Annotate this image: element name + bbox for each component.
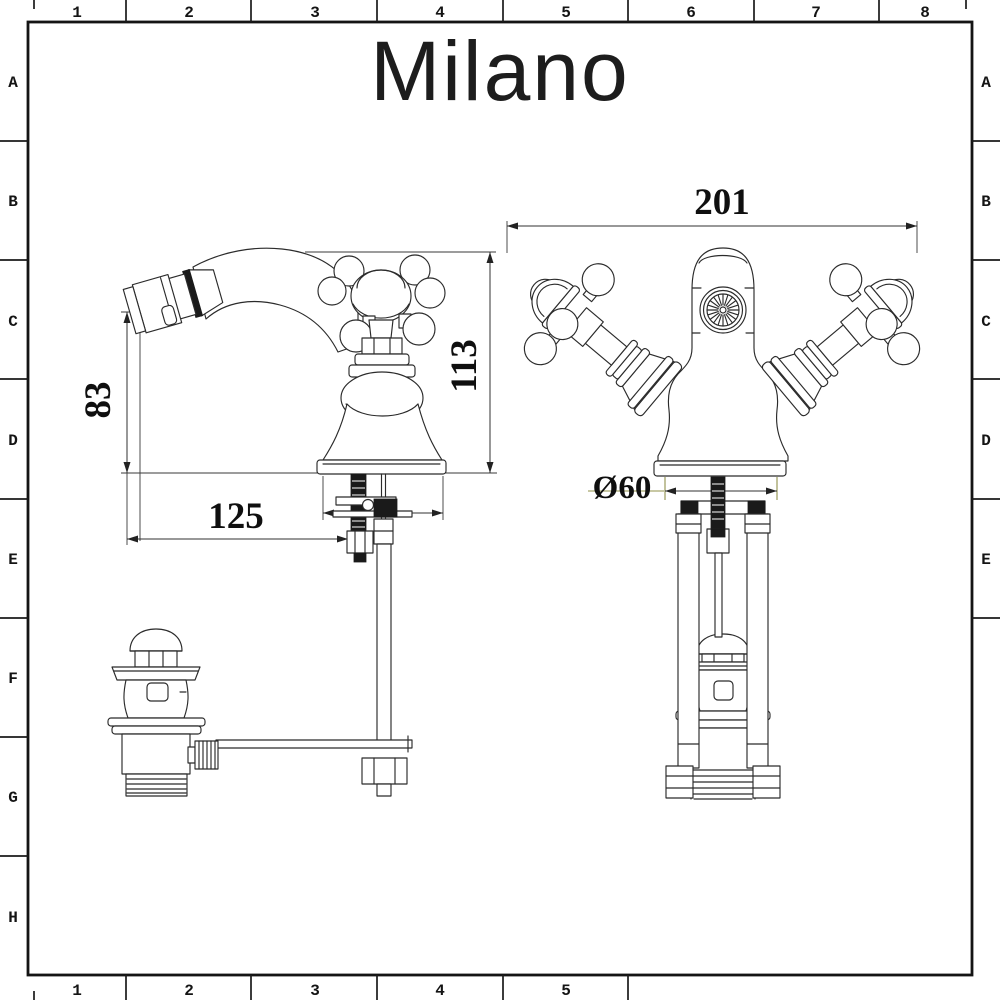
spout-nozzle — [123, 262, 225, 335]
grid-row-label: H — [8, 909, 18, 927]
side-view: 83 113 125 — [78, 248, 497, 796]
grid-row-label: A — [981, 74, 991, 92]
dim-line-113 — [487, 252, 494, 473]
grid-col-label: 5 — [561, 982, 571, 1000]
dim-text-83: 83 — [78, 382, 119, 419]
dim-text-201: 201 — [694, 182, 750, 223]
grid-col-label: 1 — [72, 982, 82, 1000]
tap-body-side — [317, 338, 446, 474]
grid-col-label: 4 — [435, 982, 445, 1000]
dim-text-113: 113 — [444, 339, 485, 392]
tap-body-front — [658, 248, 788, 461]
grid-row-label: F — [8, 670, 18, 688]
drawing-canvas: 1 2 3 4 5 6 7 8 1 2 3 4 5 A B C D E F G … — [0, 0, 1000, 1000]
dim-line-83 — [124, 312, 131, 473]
grid-ref-left: A B C D E F G H — [0, 74, 28, 927]
grid-row-label: B — [8, 193, 18, 211]
grid-col-label: 6 — [686, 4, 696, 22]
grid-row-label: D — [981, 432, 991, 450]
technical-drawing-sheet: 1 2 3 4 5 6 7 8 1 2 3 4 5 A B C D E F G … — [0, 0, 1000, 1000]
grid-row-label: G — [8, 789, 18, 807]
dim-line-201 — [507, 221, 917, 253]
front-view: 201 — [495, 182, 949, 799]
grid-col-label: 1 — [72, 4, 82, 22]
grid-row-label: C — [981, 313, 991, 331]
dim-text-diameter: Ø60 — [593, 470, 652, 506]
grid-row-label: E — [981, 551, 991, 569]
grid-col-label: 2 — [184, 4, 194, 22]
pop-up-waste-side — [108, 629, 218, 796]
grid-row-label: A — [8, 74, 18, 92]
grid-ref-bottom: 1 2 3 4 5 — [34, 975, 628, 1000]
grid-ref-top: 1 2 3 4 5 6 7 8 — [34, 0, 966, 22]
aerator-face — [700, 287, 746, 333]
grid-col-label: 3 — [310, 982, 320, 1000]
grid-ref-right: A B C D E — [972, 74, 1000, 618]
grid-col-label: 7 — [811, 4, 821, 22]
grid-col-label: 2 — [184, 982, 194, 1000]
grid-col-label: 5 — [561, 4, 571, 22]
grid-col-label: 3 — [310, 4, 320, 22]
grid-col-label: 4 — [435, 4, 445, 22]
grid-row-label: D — [8, 432, 18, 450]
grid-row-label: C — [8, 313, 18, 331]
base-plate-front — [654, 461, 786, 476]
grid-row-label: E — [8, 551, 18, 569]
grid-row-label: B — [981, 193, 991, 211]
brand-logo: Milano — [370, 24, 629, 118]
drawing-border — [28, 22, 972, 975]
dim-text-125: 125 — [208, 496, 264, 537]
grid-col-label: 8 — [920, 4, 930, 22]
